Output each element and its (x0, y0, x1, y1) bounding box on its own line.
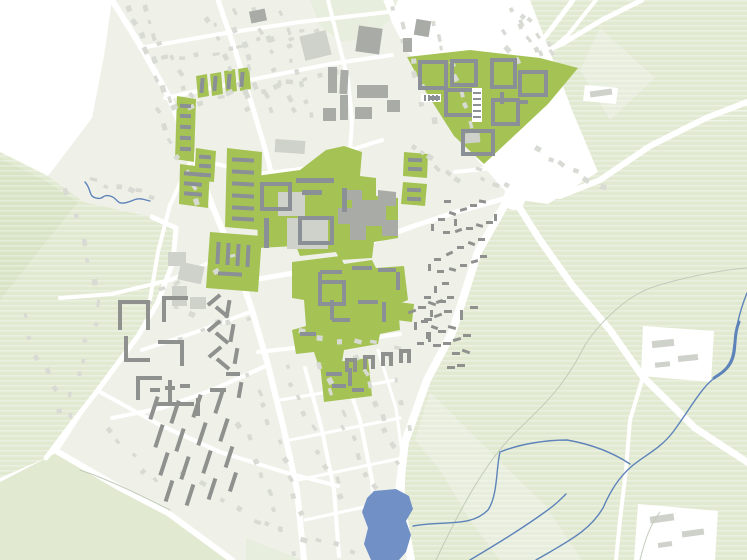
map-viewport[interactable] (0, 0, 747, 560)
lake (362, 489, 413, 560)
site-plan-map (0, 0, 747, 560)
junction-roundabout (503, 188, 525, 210)
